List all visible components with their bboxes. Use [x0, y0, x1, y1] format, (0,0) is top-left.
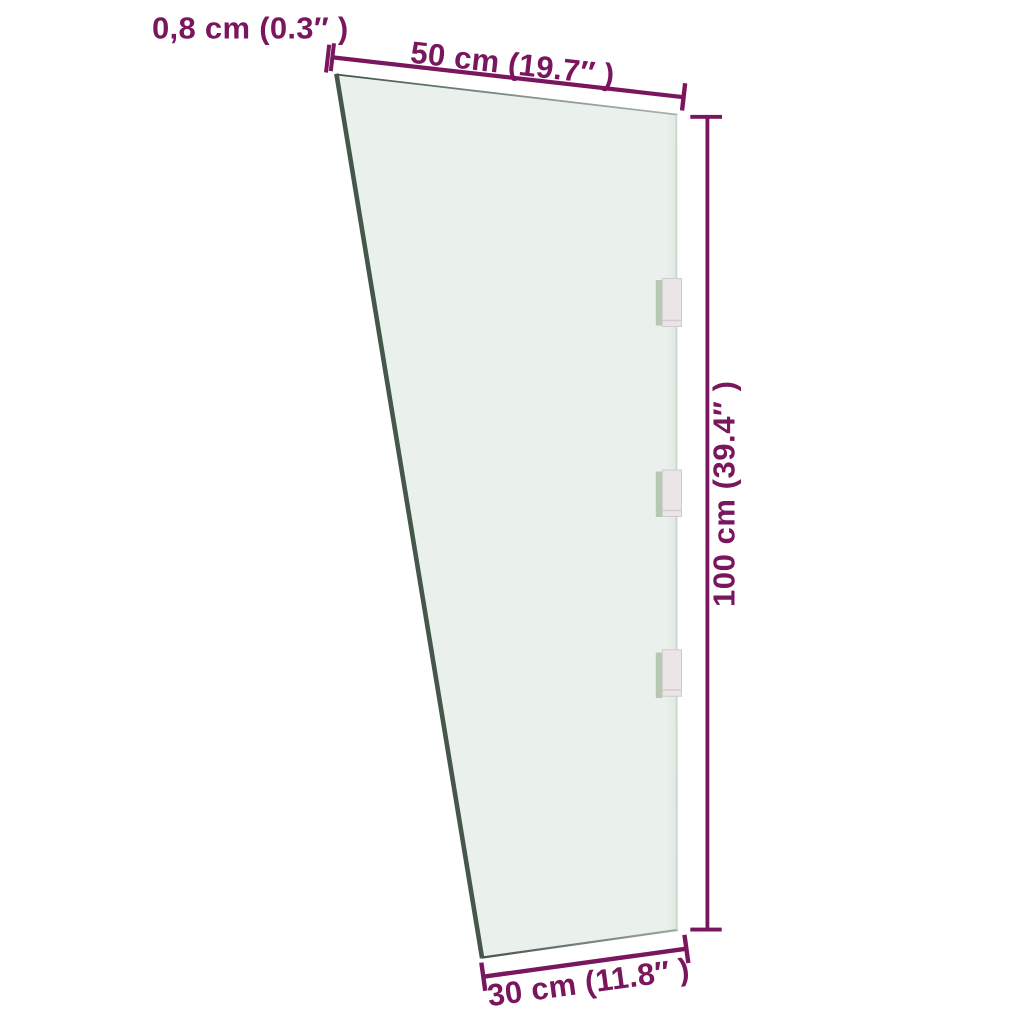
svg-text:0,8 cm (0.3″ ): 0,8 cm (0.3″ )	[152, 10, 349, 45]
svg-text:100 cm (39.4″ ): 100 cm (39.4″ )	[707, 381, 742, 607]
